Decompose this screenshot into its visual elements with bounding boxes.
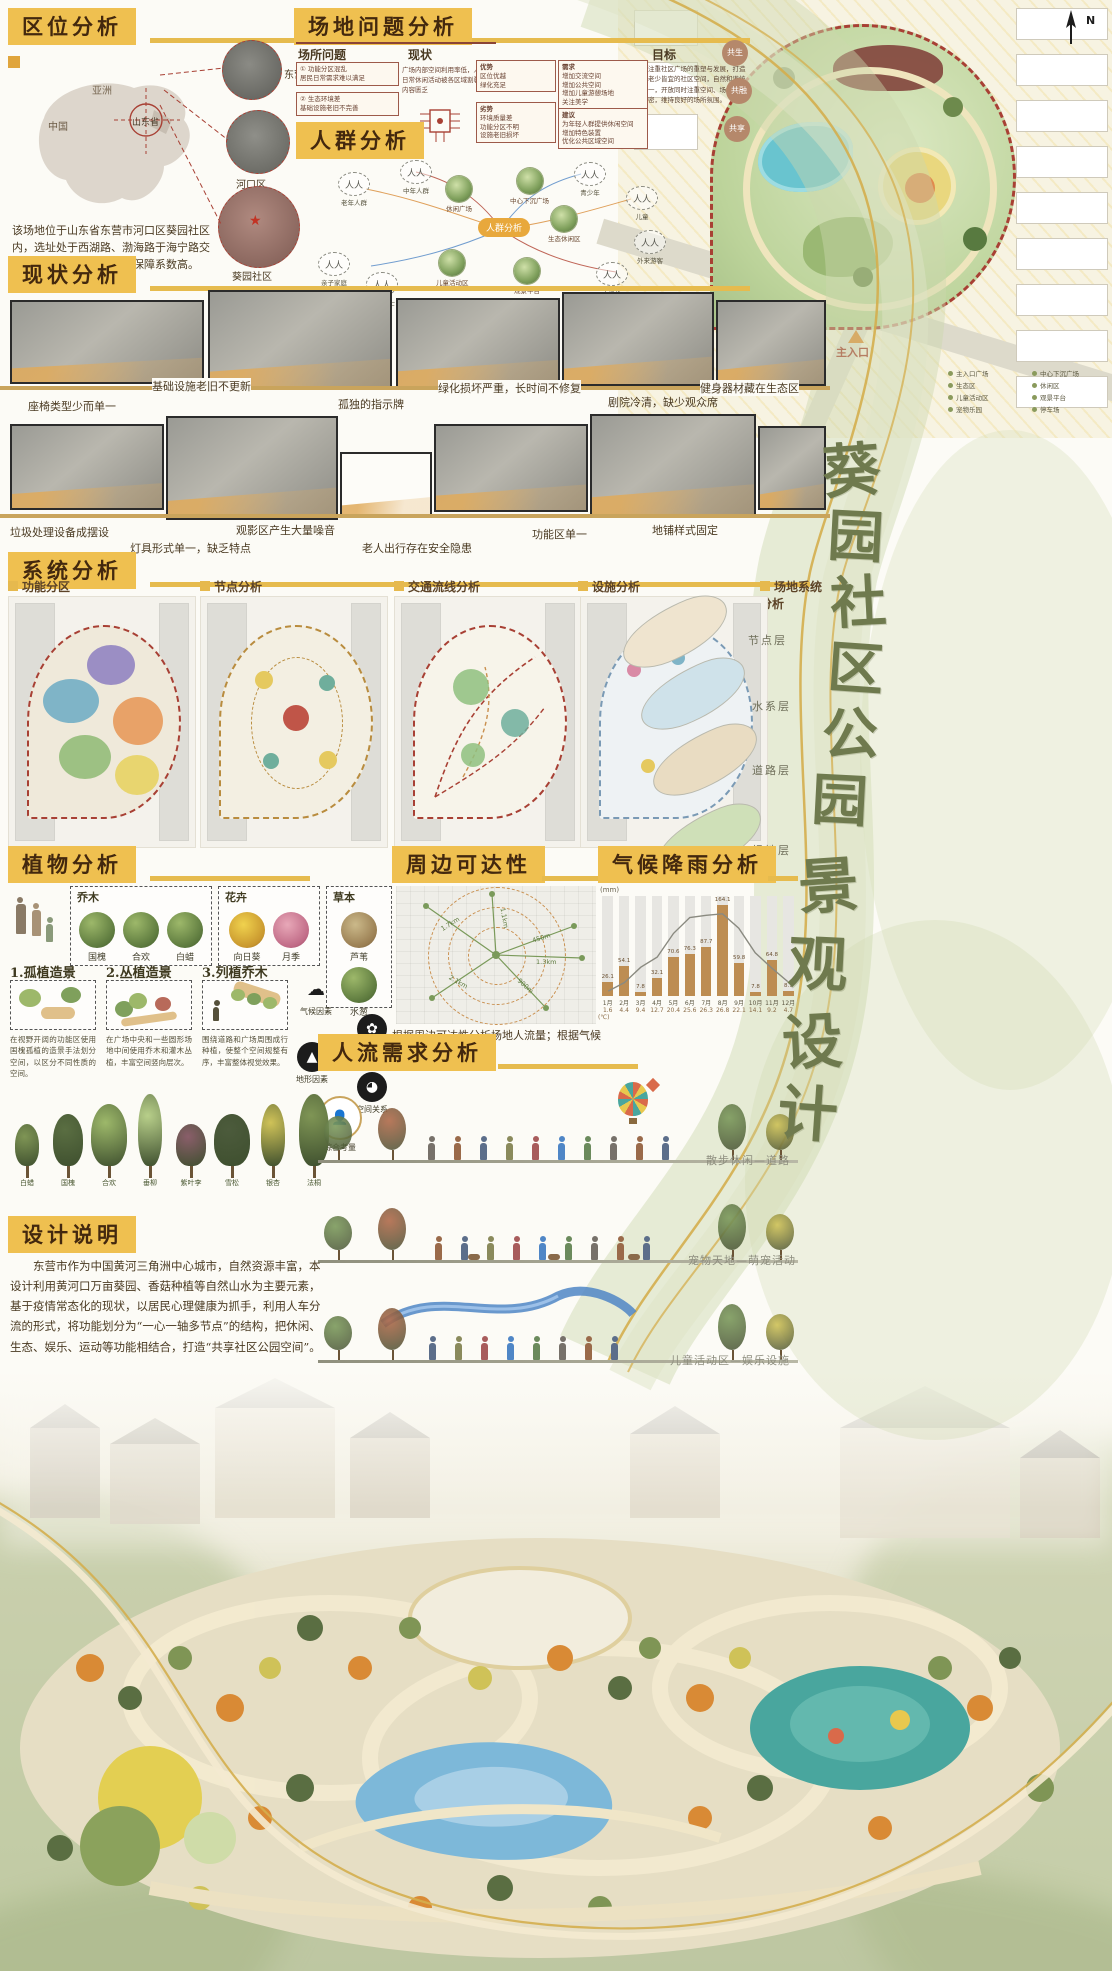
crowd-group-label: 青少年 bbox=[574, 187, 606, 197]
tree-elevation-row: 白蜡国槐合欢垂柳紫叶李雪松银杏法桐 bbox=[8, 1092, 338, 1202]
species-icon bbox=[167, 912, 203, 948]
tree-label: 紫叶李 bbox=[172, 1178, 210, 1188]
crowd-center-node: 人群分析 bbox=[478, 218, 530, 237]
flow-rule bbox=[498, 1064, 638, 1069]
legend-label: 休闲区 bbox=[1040, 380, 1060, 390]
advantage-title: 优势 bbox=[480, 63, 493, 71]
person-silhouette bbox=[559, 1343, 566, 1360]
col-status: 现状 bbox=[408, 46, 432, 63]
blue-ribbon-canopy bbox=[378, 1284, 638, 1334]
panel-label-facility: 设施分析 bbox=[578, 578, 640, 595]
rain-bar-track: 7.8 bbox=[635, 896, 645, 996]
person-silhouette bbox=[481, 1343, 488, 1360]
temperature-value: 9.2 bbox=[767, 1007, 777, 1014]
tree-canopy bbox=[378, 1308, 406, 1350]
legend-dot bbox=[1032, 371, 1037, 376]
goal-tag-1: 共生 bbox=[722, 40, 748, 66]
rain-bar-track: 76.3 bbox=[685, 896, 695, 996]
scene-label-pets: 宠物天地—萌宠活动 bbox=[688, 1252, 796, 1268]
rain-bar bbox=[652, 978, 662, 996]
person-silhouette bbox=[461, 1243, 468, 1260]
section-accessibility: 周边可达性 1.7km 1.1km 450m 1.3km 2.1km bbox=[392, 846, 607, 1046]
rain-value-label: 59.8 bbox=[731, 955, 748, 961]
panel-label-traffic: 交通流线分析 bbox=[394, 578, 480, 595]
method-2-desc: 在广场中央和一些圆形场地中间使用乔木和灌木丛植，丰富空间竖向层次。 bbox=[106, 1034, 192, 1068]
crowd-place-label: 中心下沉广场 bbox=[510, 195, 549, 205]
rain-month-column: 7.83月9.4 bbox=[633, 896, 648, 1014]
person-group-icon: 人人 bbox=[338, 172, 370, 196]
goal-tag-2: 共融 bbox=[726, 78, 752, 104]
person-group-icon: 人人 bbox=[400, 160, 432, 184]
temperature-value: 9.4 bbox=[636, 1007, 646, 1014]
render-haze bbox=[0, 1368, 1112, 1508]
person-silhouette bbox=[643, 1243, 650, 1260]
person-silhouette bbox=[428, 1143, 435, 1160]
section-flow: 人流需求分析 散步休闲—道路 宠物天地—萌宠活动 儿童活动区—娱乐设施 bbox=[318, 1034, 818, 1364]
place-photo-icon bbox=[551, 206, 577, 232]
person-group-icon: 人人 bbox=[634, 230, 666, 254]
rain-bar-track: 64.8 bbox=[767, 896, 777, 996]
tree-canopy bbox=[766, 1314, 794, 1350]
rain-month-column: 7.810月14.1 bbox=[748, 896, 763, 1014]
title-char: 计 bbox=[775, 1064, 841, 1155]
temperature-value: 20.4 bbox=[667, 1007, 680, 1014]
person-group-icon: 人人 bbox=[574, 162, 606, 186]
rain-bar-track: 7.8 bbox=[750, 896, 760, 996]
rain-unit-label: (mm) bbox=[600, 886, 619, 894]
legend-dot bbox=[948, 383, 953, 388]
site-problems-rule bbox=[490, 38, 750, 43]
sun-cloud-icon: ☁ bbox=[301, 974, 331, 1004]
tree-trunk bbox=[392, 1350, 394, 1360]
site-photo bbox=[758, 426, 826, 510]
crowd-group-node: 人人老年人群 bbox=[338, 172, 370, 207]
park-tree bbox=[853, 267, 873, 287]
section-system: 系统分析 功能分区 节点分析 交通流线分析 设施分析 场地系统分析 bbox=[0, 552, 830, 852]
status-caption: 观影区产生大量噪音 bbox=[236, 522, 335, 538]
scene-tree bbox=[378, 1208, 408, 1260]
crowd-place-label: 休闲广场 bbox=[446, 203, 472, 213]
flow-title: 人流需求分析 bbox=[318, 1034, 496, 1071]
accessibility-map: 1.7km 1.1km 450m 1.3km 2.1km 900m bbox=[396, 886, 596, 1024]
rain-bar bbox=[734, 963, 744, 996]
temperature-value: 14.1 bbox=[749, 1007, 762, 1014]
status-divider-2 bbox=[0, 514, 830, 518]
tree-trunk bbox=[338, 1350, 340, 1360]
design-poster: 主入口 主入口广场中心下沉广场生态区休闲区儿童活动区观景平台宠物乐园停车场 N … bbox=[0, 0, 1112, 1971]
context-building bbox=[1016, 192, 1108, 224]
context-building bbox=[1016, 100, 1108, 132]
north-label: N bbox=[1086, 14, 1095, 27]
species-icon bbox=[79, 912, 115, 948]
method-2-sketch bbox=[106, 980, 192, 1030]
crowd-place-node: 休闲广场 bbox=[446, 176, 472, 213]
legend-label: 停车场 bbox=[1040, 404, 1060, 414]
balloon-basket bbox=[629, 1118, 637, 1124]
section-design-note: 设计说明 东营市作为中国黄河三角洲中心城市，自然资源丰富，本设计利用黄河口万亩葵… bbox=[0, 1216, 330, 1376]
section-status-quo: 现状分析 座椅类型少而单一 基础设施老旧不更新 孤独的指示牌 绿化损坏严重，长时… bbox=[0, 256, 830, 556]
legend-dot bbox=[948, 395, 953, 400]
temperature-value: 12.7 bbox=[650, 1007, 663, 1014]
crowd-group-label: 老年人群 bbox=[338, 197, 370, 207]
rain-bar bbox=[717, 905, 727, 996]
rain-value-label: 164.1 bbox=[714, 897, 731, 903]
layer-label-node: 节点层 bbox=[748, 632, 787, 648]
person-silhouette bbox=[662, 1143, 669, 1160]
category-trees: 乔木 国槐 合欢 白蜡 bbox=[70, 886, 212, 966]
scene-tree bbox=[378, 1308, 408, 1360]
tree-canopy bbox=[214, 1114, 250, 1166]
month-label: 5月 bbox=[668, 998, 678, 1007]
temperature-value: 1.6 bbox=[603, 1007, 613, 1014]
category-flowers-name: 花卉 bbox=[219, 887, 319, 907]
design-note-title: 设计说明 bbox=[8, 1216, 136, 1253]
legend-item: 观景平台 bbox=[1032, 392, 1108, 402]
rain-bar-track: 26.1 bbox=[602, 896, 612, 996]
status-caption: 孤独的指示牌 bbox=[338, 396, 404, 412]
design-note-text: 东营市作为中国黄河三角洲中心城市，自然资源丰富，本设计利用黄河口万亩葵园、香菇种… bbox=[10, 1256, 322, 1357]
kite-icon bbox=[646, 1078, 660, 1092]
factor-climate: ☁ 气候因素 bbox=[300, 974, 332, 1017]
rain-value-label: 26.1 bbox=[599, 974, 616, 980]
site-photo bbox=[166, 416, 338, 520]
tree-elevation: 垂柳 bbox=[131, 1094, 169, 1188]
person-silhouette bbox=[454, 1143, 461, 1160]
perspective-render bbox=[0, 1368, 1112, 1971]
flow-top-rule bbox=[296, 42, 496, 44]
person-silhouette bbox=[533, 1343, 540, 1360]
legend-item: 宠物乐园 bbox=[948, 404, 1024, 414]
place-photo-icon bbox=[446, 176, 472, 202]
section-climate: 气候降雨分析 (mm) 26.11月1.654.12月4.47.83月9.432… bbox=[598, 846, 798, 1031]
context-building bbox=[1016, 330, 1108, 362]
problem-box-1: ① 功能分区混乱 居民日常需求难以满足 bbox=[296, 62, 399, 86]
month-label: 8月 bbox=[718, 998, 728, 1007]
legend-item: 停车场 bbox=[1032, 404, 1108, 414]
species-icon bbox=[123, 912, 159, 948]
tree-canopy bbox=[15, 1124, 39, 1166]
flow-scene-walk bbox=[318, 1074, 798, 1160]
scene-tree bbox=[324, 1116, 354, 1160]
tree-trunk bbox=[392, 1150, 394, 1160]
tree-trunk bbox=[108, 1166, 111, 1178]
month-label: 1月 bbox=[603, 998, 613, 1007]
suggest-title: 建议 bbox=[562, 111, 575, 119]
site-photo bbox=[434, 424, 588, 512]
crowd-place-label: 生态休闲区 bbox=[548, 233, 581, 243]
species-icon bbox=[273, 912, 309, 948]
status-caption: 绿化损坏严重，长时间不修复 bbox=[438, 380, 581, 396]
person-silhouette bbox=[513, 1243, 520, 1260]
tree-trunk bbox=[272, 1166, 275, 1178]
method-1-sketch bbox=[10, 980, 96, 1030]
temperature-value: 25.6 bbox=[683, 1007, 696, 1014]
plants-rule bbox=[150, 876, 310, 881]
person-silhouette bbox=[480, 1143, 487, 1160]
legend-item: 主入口广场 bbox=[948, 368, 1024, 378]
tree-canopy bbox=[718, 1304, 746, 1350]
tree-canopy bbox=[378, 1208, 406, 1250]
tree-canopy bbox=[261, 1104, 285, 1166]
method-2-name: 2.丛植造景 bbox=[106, 962, 172, 981]
col-problem: 场所问题 bbox=[298, 46, 346, 63]
person-silhouette bbox=[435, 1243, 442, 1260]
crowd-place-node: 中心下沉广场 bbox=[510, 168, 549, 205]
status-caption: 座椅类型少而单一 bbox=[28, 398, 116, 414]
main-entrance-marker bbox=[848, 330, 864, 343]
rain-month-column: 59.89月22.1 bbox=[731, 896, 746, 1014]
park-tree bbox=[963, 227, 987, 251]
scene-label-children: 儿童活动区—娱乐设施 bbox=[670, 1352, 790, 1368]
legend-dot bbox=[948, 371, 953, 376]
tree-trunk bbox=[190, 1166, 193, 1178]
tree-canopy bbox=[766, 1214, 794, 1250]
site-problems-title: 场地问题分析 bbox=[294, 8, 472, 45]
person-silhouette bbox=[532, 1143, 539, 1160]
system-panel-node bbox=[200, 596, 388, 848]
tree-trunk bbox=[313, 1166, 316, 1178]
legend-dot bbox=[1032, 407, 1037, 412]
legend-label: 观景平台 bbox=[1040, 392, 1066, 402]
person-silhouette bbox=[610, 1143, 617, 1160]
month-label: 6月 bbox=[685, 998, 695, 1007]
species-icon bbox=[341, 967, 377, 1003]
tree-elevation: 白蜡 bbox=[8, 1124, 46, 1188]
rain-bar bbox=[619, 966, 629, 996]
layer-label-water: 水系层 bbox=[752, 698, 791, 714]
person-silhouette bbox=[487, 1243, 494, 1260]
context-building bbox=[1016, 146, 1108, 178]
legend-dot bbox=[948, 407, 953, 412]
rain-bar bbox=[635, 992, 645, 996]
scene-label-walk: 散步休闲—道路 bbox=[706, 1152, 790, 1168]
tree-elevation: 国槐 bbox=[49, 1114, 87, 1188]
person-silhouette bbox=[565, 1243, 572, 1260]
legend-label: 中心下沉广场 bbox=[1040, 368, 1079, 378]
person-silhouette bbox=[591, 1243, 598, 1260]
tree-canopy bbox=[53, 1114, 83, 1166]
person-silhouette bbox=[558, 1143, 565, 1160]
tree-label: 雪松 bbox=[213, 1178, 251, 1188]
method-3-name: 3.列植乔木 bbox=[202, 962, 268, 981]
system-panel-function bbox=[8, 596, 196, 848]
rain-value-label: 7.8 bbox=[747, 984, 764, 990]
status-caption: 功能区单一 bbox=[532, 526, 587, 542]
tree-canopy bbox=[324, 1116, 352, 1150]
person-silhouette bbox=[617, 1243, 624, 1260]
legend-dot bbox=[1032, 395, 1037, 400]
tree-label: 垂柳 bbox=[131, 1178, 169, 1188]
species-icon bbox=[229, 912, 265, 948]
site-photo bbox=[10, 300, 204, 384]
north-arrow-icon bbox=[1060, 10, 1082, 44]
crowd-group-node: 人人青少年 bbox=[574, 162, 606, 197]
tree-label: 银杏 bbox=[254, 1178, 292, 1188]
rain-bar bbox=[668, 957, 678, 996]
hot-air-balloon bbox=[618, 1082, 648, 1124]
person-silhouette bbox=[584, 1143, 591, 1160]
tree-label: 国槐 bbox=[49, 1178, 87, 1188]
rain-bars: 26.11月1.654.12月4.47.83月9.432.14月12.770.6… bbox=[600, 896, 796, 1026]
map-label-asia: 亚洲 bbox=[92, 82, 112, 97]
tree-canopy bbox=[718, 1204, 746, 1250]
rain-month-column: 76.36月25.6 bbox=[682, 896, 697, 1014]
person-silhouette bbox=[585, 1343, 592, 1360]
rain-value-label: 64.8 bbox=[764, 952, 781, 958]
rain-value-label: 54.1 bbox=[616, 958, 633, 964]
tree-trunk bbox=[392, 1250, 394, 1260]
legend-dot bbox=[1032, 383, 1037, 388]
month-label: 4月 bbox=[652, 998, 662, 1007]
month-label: 2月 bbox=[619, 998, 629, 1007]
tree-canopy bbox=[138, 1094, 162, 1166]
system-panel-traffic bbox=[394, 596, 582, 848]
map-label-china: 中国 bbox=[48, 118, 68, 133]
site-photo bbox=[208, 290, 392, 390]
panel-label-function: 功能分区 bbox=[8, 578, 70, 595]
tree-trunk bbox=[231, 1166, 234, 1178]
person-silhouette bbox=[429, 1343, 436, 1360]
crowd-place-node: 生态休闲区 bbox=[548, 206, 581, 243]
disadvantage-title: 劣势 bbox=[480, 105, 493, 113]
site-photo bbox=[716, 300, 826, 386]
panel-label-node: 节点分析 bbox=[200, 578, 262, 595]
temp-unit-label: (℃) bbox=[598, 1014, 609, 1021]
rain-bar-track: 164.1 bbox=[717, 896, 727, 996]
rain-bar-track: 59.8 bbox=[734, 896, 744, 996]
site-photo bbox=[340, 452, 432, 518]
legend-item: 生态区 bbox=[948, 380, 1024, 390]
legend-label: 儿童活动区 bbox=[956, 392, 989, 402]
rain-bar bbox=[602, 982, 612, 997]
rain-month-column: 70.65月20.4 bbox=[666, 896, 681, 1014]
person-silhouette bbox=[455, 1343, 462, 1360]
month-label: 10月 bbox=[749, 998, 763, 1007]
method-1-name: 1.孤植造景 bbox=[10, 962, 76, 981]
site-photo bbox=[396, 298, 560, 388]
zoom-connector-lines bbox=[140, 50, 260, 250]
month-label: 11月 bbox=[765, 998, 779, 1007]
tree-label: 白蜡 bbox=[8, 1178, 46, 1188]
accessibility-title: 周边可达性 bbox=[392, 846, 545, 883]
status-caption: 剧院冷清，缺少观众席 bbox=[608, 394, 718, 410]
status-quo-title: 现状分析 bbox=[8, 256, 136, 293]
status-caption: 地铺样式固定 bbox=[652, 522, 718, 538]
rain-value-label: 76.3 bbox=[681, 946, 698, 952]
legend-item: 儿童活动区 bbox=[948, 392, 1024, 402]
category-herbs-name: 草本 bbox=[327, 887, 391, 907]
legend-label: 宠物乐园 bbox=[956, 404, 982, 414]
month-label: 3月 bbox=[636, 998, 646, 1007]
title-char: 景 bbox=[795, 836, 861, 927]
park-tree bbox=[943, 97, 963, 117]
rain-bar-track: 70.6 bbox=[668, 896, 678, 996]
tree-elevation: 合欢 bbox=[90, 1104, 128, 1188]
advantage-text: 区位优越 绿化充足 bbox=[480, 72, 506, 89]
climate-rule bbox=[768, 876, 798, 881]
site-photo bbox=[590, 414, 756, 516]
flow-scene-pets bbox=[318, 1174, 798, 1260]
person-silhouette bbox=[539, 1243, 546, 1260]
rain-month-column: 26.11月1.6 bbox=[600, 896, 615, 1014]
rain-value-label: 87.7 bbox=[698, 939, 715, 945]
method-3-desc: 围绕道路和广场周围成行种植，使整个空间规整有序，丰富整体视觉效果。 bbox=[202, 1034, 288, 1068]
tree-canopy bbox=[176, 1124, 206, 1166]
category-flowers: 花卉 向日葵 月季 bbox=[218, 886, 320, 966]
tree-elevation: 紫叶李 bbox=[172, 1124, 210, 1188]
scene-tree bbox=[378, 1108, 408, 1160]
main-entrance-label: 主入口 bbox=[836, 344, 869, 360]
accessibility-spokes bbox=[396, 886, 596, 1024]
rain-bar bbox=[701, 947, 711, 996]
tree-canopy bbox=[718, 1104, 746, 1150]
location-title: 区位分析 bbox=[8, 8, 136, 45]
month-label: 9月 bbox=[734, 998, 744, 1007]
spoke-distance: 1.3km bbox=[536, 958, 556, 966]
rain-value-label: 70.6 bbox=[665, 949, 682, 955]
species-name: 国槐 bbox=[88, 953, 106, 963]
tree-label: 合欢 bbox=[90, 1178, 128, 1188]
site-photo bbox=[562, 292, 714, 386]
crowd-group-label: 中年人群 bbox=[400, 185, 432, 195]
rain-bar bbox=[767, 960, 777, 996]
person-group-icon: 人人 bbox=[626, 186, 658, 210]
crowd-group-node: 人人中年人群 bbox=[400, 160, 432, 195]
context-building bbox=[1016, 238, 1108, 270]
status-caption: 健身器材藏在生态区 bbox=[700, 380, 799, 396]
species-name: 月季 bbox=[282, 953, 300, 963]
rain-month-column: 64.811月9.2 bbox=[764, 896, 779, 1014]
rain-month-column: 32.14月12.7 bbox=[649, 896, 664, 1014]
rain-month-column: 164.18月26.8 bbox=[715, 896, 730, 1014]
rain-bar bbox=[685, 954, 695, 996]
rain-bar-track: 32.1 bbox=[652, 896, 662, 996]
crowd-group-label: 儿童 bbox=[626, 211, 658, 221]
title-char: 观 bbox=[786, 914, 850, 1004]
temperature-value: 26.3 bbox=[700, 1007, 713, 1014]
tree-trunk bbox=[67, 1166, 70, 1178]
climate-title: 气候降雨分析 bbox=[598, 846, 776, 883]
legend-label: 主入口广场 bbox=[956, 368, 989, 378]
accessibility-rule bbox=[542, 876, 602, 881]
rain-month-column: 54.12月4.4 bbox=[616, 896, 631, 1014]
category-trees-name: 乔木 bbox=[71, 887, 211, 907]
species-name: 芦苇 bbox=[350, 953, 368, 963]
problem-box-2: ② 生态环境差 基础设施老旧不完善 bbox=[296, 92, 399, 116]
species-icon bbox=[341, 912, 377, 948]
species-name: 白蜡 bbox=[176, 953, 194, 963]
flow-scene-children bbox=[318, 1274, 798, 1360]
person-silhouette bbox=[636, 1143, 643, 1160]
category-herbs: 草本 芦苇 水葱 bbox=[326, 886, 392, 1008]
tree-trunk bbox=[149, 1166, 152, 1178]
context-building bbox=[1016, 54, 1108, 86]
temperature-value: 22.1 bbox=[732, 1007, 745, 1014]
demand-box: 需求 增加交流空间 增加公共空间 增加儿童游憩场地 关注美学 bbox=[558, 60, 648, 110]
goal-tag-3: 共享 bbox=[724, 116, 750, 142]
rain-bar-track: 54.1 bbox=[619, 896, 629, 996]
status-caption: 垃圾处理设备成摆设 bbox=[10, 524, 109, 540]
status-caption: 基础设施老旧不更新 bbox=[152, 378, 251, 394]
demand-text: 增加交流空间 增加公共空间 增加儿童游憩场地 关注美学 bbox=[562, 72, 614, 106]
legend-label: 生态区 bbox=[956, 380, 976, 390]
panel-label-site-system: 场地系统分析 bbox=[760, 578, 830, 612]
demand-title: 需求 bbox=[562, 63, 575, 71]
rain-bar bbox=[750, 992, 760, 996]
tree-canopy bbox=[91, 1104, 127, 1166]
rain-month-column: 87.77月26.3 bbox=[699, 896, 714, 1014]
site-photo bbox=[10, 424, 164, 510]
